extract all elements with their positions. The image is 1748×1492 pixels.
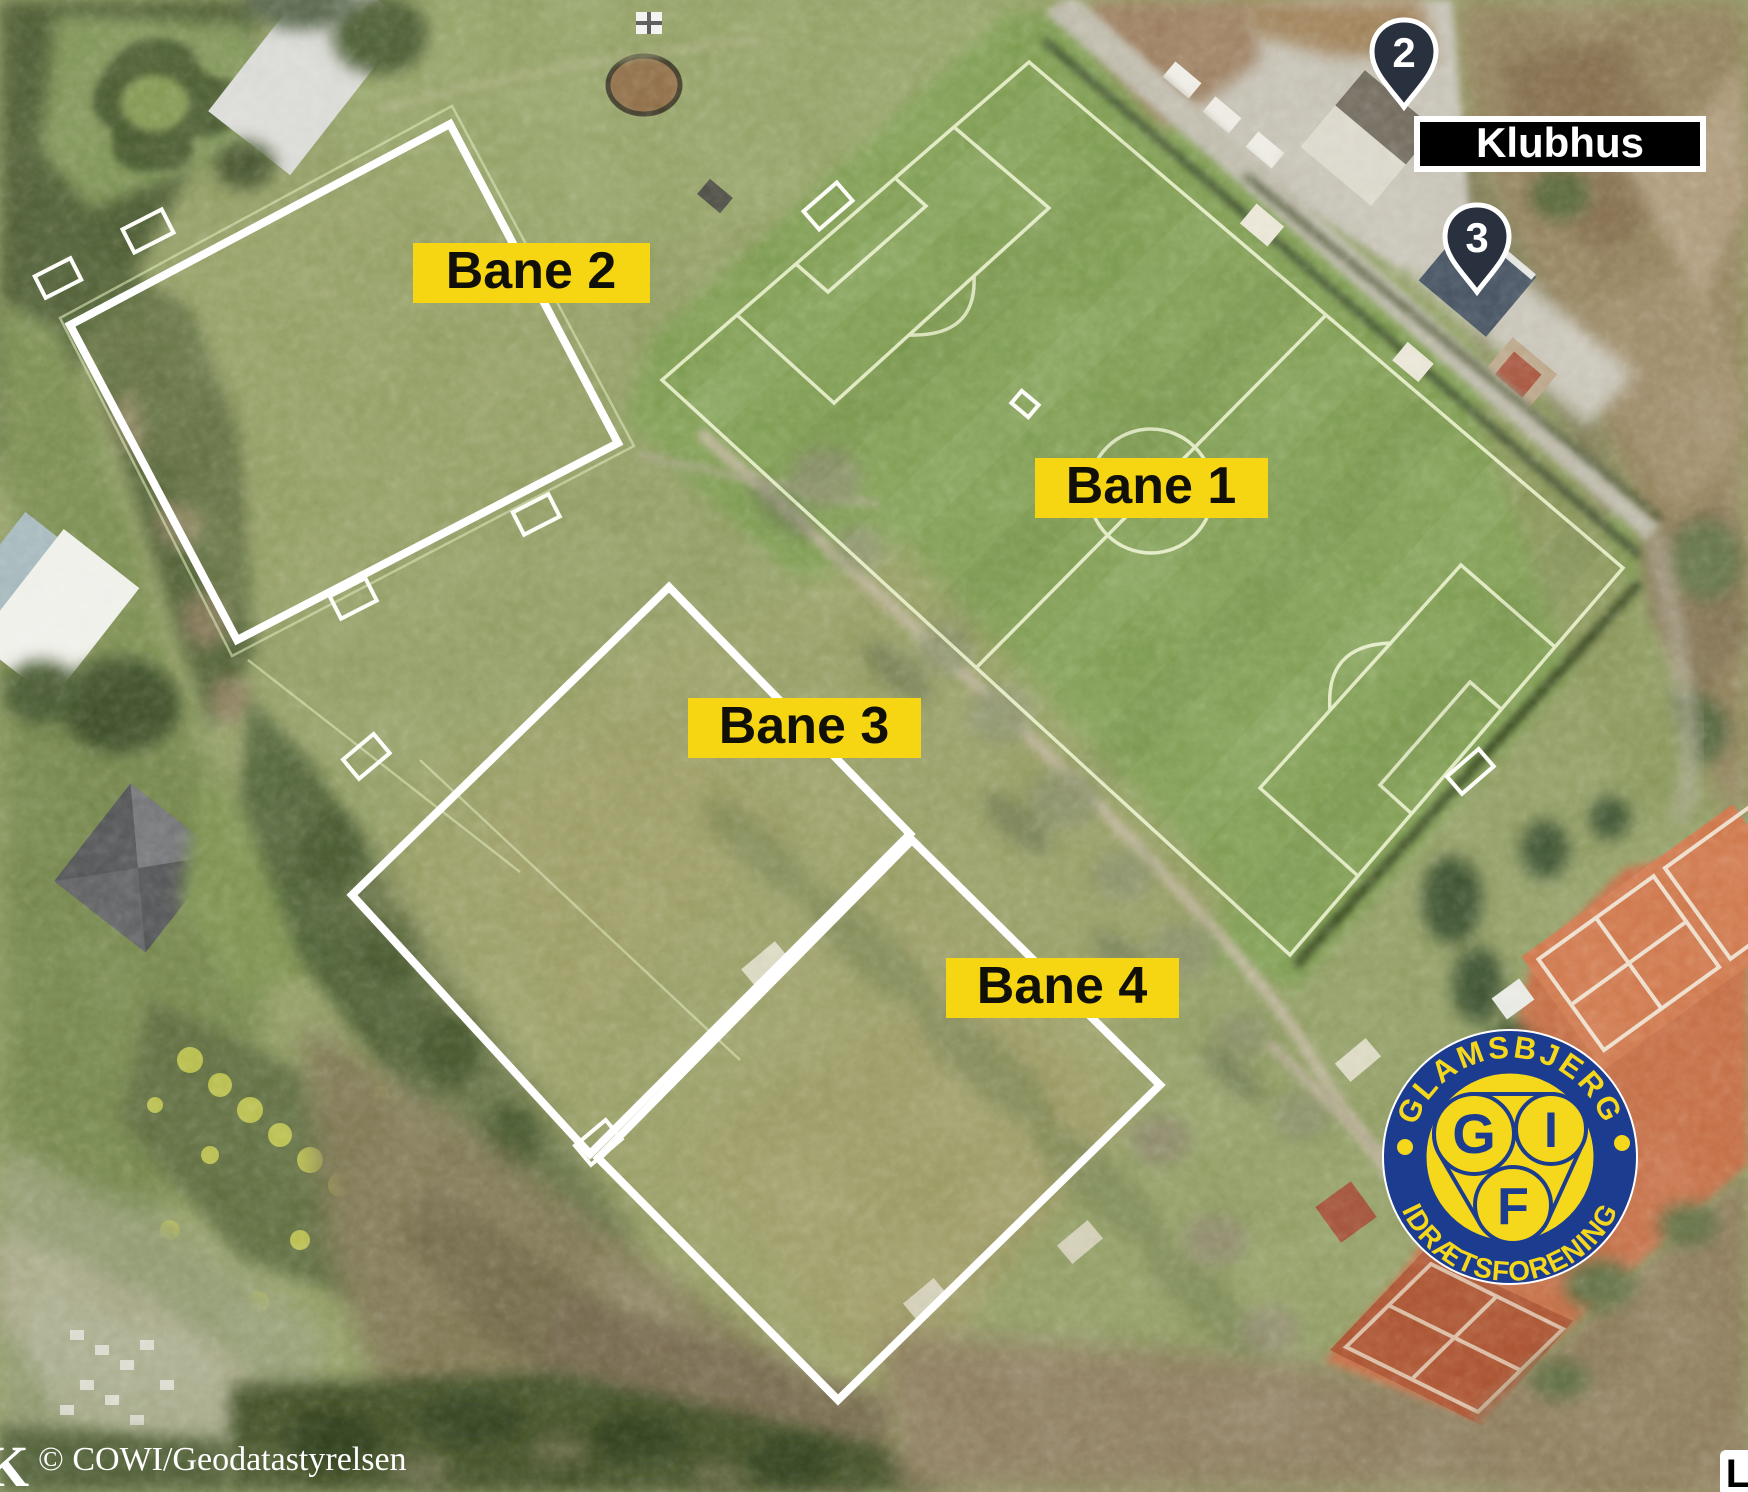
svg-text:F: F bbox=[1497, 1178, 1529, 1236]
svg-text:3: 3 bbox=[1465, 214, 1488, 261]
svg-text:Klubhus: Klubhus bbox=[1476, 119, 1644, 166]
svg-text:Bane 1: Bane 1 bbox=[1066, 457, 1237, 515]
svg-text:L: L bbox=[1726, 1452, 1748, 1492]
svg-text:2: 2 bbox=[1392, 29, 1415, 76]
svg-text:Bane 2: Bane 2 bbox=[446, 242, 617, 300]
svg-text:I: I bbox=[1544, 1102, 1558, 1158]
svg-text:G: G bbox=[1452, 1102, 1496, 1165]
svg-text:Bane 4: Bane 4 bbox=[977, 957, 1148, 1015]
svg-text:© COWI/Geodatastyrelsen: © COWI/Geodatastyrelsen bbox=[38, 1441, 407, 1478]
svg-text:Bane 3: Bane 3 bbox=[719, 697, 890, 755]
svg-text:K: K bbox=[0, 1434, 29, 1492]
